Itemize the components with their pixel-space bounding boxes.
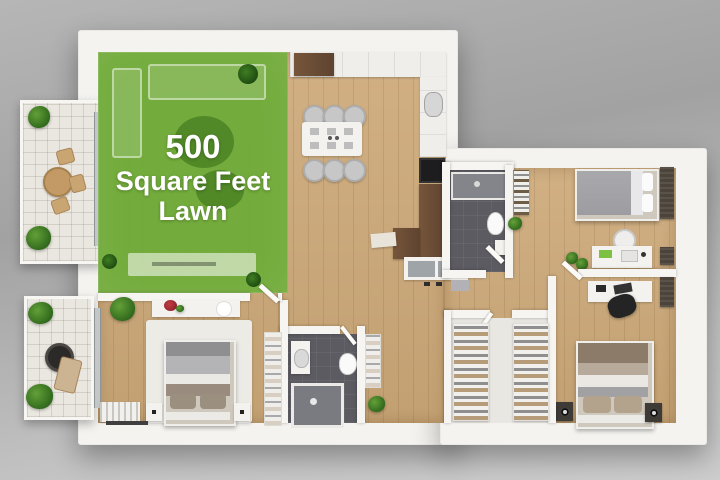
shower-head xyxy=(474,181,480,187)
wall xyxy=(442,162,514,170)
towel-shelf xyxy=(365,334,381,388)
bed-pillow xyxy=(170,394,196,409)
lawn-label-word: Lawn xyxy=(158,196,227,226)
balcony-plant-icon xyxy=(28,106,50,128)
laptop xyxy=(621,250,638,262)
wall xyxy=(444,310,451,423)
bed-duvet xyxy=(578,343,648,363)
plant-icon xyxy=(508,217,522,230)
wall xyxy=(442,162,450,278)
kitchen-counter-right xyxy=(420,77,446,157)
lawn-label: 500 Square Feet Lawn xyxy=(98,118,288,238)
bed-footboard xyxy=(578,415,648,423)
plant-icon xyxy=(368,396,385,412)
lawn-label-unit: Square Feet xyxy=(116,166,271,196)
table-centerpiece xyxy=(328,136,332,140)
desk-accessory xyxy=(596,285,606,292)
nightstand xyxy=(556,402,573,421)
balcony-plant-icon xyxy=(26,384,53,409)
wardrobe xyxy=(660,167,674,219)
plant-icon xyxy=(110,297,135,321)
plant-icon xyxy=(176,305,184,312)
kitchen-sink xyxy=(424,92,443,117)
nightstand-knob xyxy=(561,408,569,416)
bed-pillow xyxy=(614,396,642,413)
wardrobe xyxy=(660,247,674,265)
media-console-screen xyxy=(152,262,216,266)
radiator-bench xyxy=(100,402,140,422)
nightstand xyxy=(645,403,662,422)
plant-icon xyxy=(102,254,117,269)
placemat xyxy=(344,128,353,135)
cabinet xyxy=(660,277,674,307)
flower-vase xyxy=(164,300,177,311)
bed-bottom-right xyxy=(576,341,654,429)
shoes xyxy=(436,282,442,286)
bed-duvet xyxy=(578,363,648,375)
shower-top-bathroom xyxy=(451,172,508,200)
placemat xyxy=(327,142,336,149)
plant-icon xyxy=(246,272,261,287)
kitchen-island xyxy=(393,228,420,259)
bed-pillow xyxy=(200,394,226,409)
nightstand-knob xyxy=(650,409,658,417)
bed-bottom-left xyxy=(164,340,236,426)
kitchen-dark-cabinet xyxy=(294,53,334,76)
cutting-board xyxy=(370,232,396,248)
bed-footboard xyxy=(166,412,230,420)
window-strip xyxy=(106,421,148,425)
wall xyxy=(357,326,365,423)
wall xyxy=(280,326,340,334)
clothes-rack xyxy=(453,323,489,421)
wall xyxy=(548,276,556,423)
toilet xyxy=(339,353,357,375)
bed-pillow xyxy=(583,396,611,413)
storage-shelf xyxy=(514,170,529,215)
desk-lamp xyxy=(641,252,646,257)
bed-pillow xyxy=(642,173,653,191)
plant-icon xyxy=(238,64,258,84)
nightstand xyxy=(234,403,250,421)
clothes-rack xyxy=(513,323,549,421)
table-centerpiece xyxy=(335,136,339,140)
desk-accessory xyxy=(599,250,612,258)
floor-plan-image: 500 Square Feet Lawn xyxy=(0,0,720,480)
placemat xyxy=(310,128,319,135)
bed-duvet xyxy=(166,356,230,374)
sliding-door xyxy=(94,308,101,408)
vanity-sink xyxy=(294,349,309,368)
nightstand xyxy=(146,403,162,421)
bed-duvet xyxy=(577,171,633,215)
nightstand-knob xyxy=(240,410,244,414)
sideboard-door-panel xyxy=(408,261,435,277)
dining-chair xyxy=(343,159,366,182)
balcony-plant-icon xyxy=(26,226,51,250)
bed-sheet xyxy=(166,374,230,384)
toilet xyxy=(487,212,504,235)
lawn-label-value: 500 xyxy=(165,129,220,166)
bed-pillow xyxy=(642,194,653,212)
placemat xyxy=(310,142,319,149)
shoes xyxy=(424,282,430,286)
bed-duvet xyxy=(166,342,230,356)
nightstand-knob xyxy=(152,410,156,414)
bath-mat xyxy=(451,280,469,291)
shower-drain xyxy=(310,398,317,405)
wall xyxy=(578,269,676,277)
wall xyxy=(512,310,552,318)
placemat xyxy=(344,142,353,149)
decor-bowl xyxy=(216,301,232,317)
linen-wardrobe xyxy=(264,332,282,426)
shower-bottom-bathroom xyxy=(291,383,344,428)
bed-sheet xyxy=(578,375,648,387)
balcony-plant-icon xyxy=(28,302,53,324)
wall xyxy=(442,270,486,278)
bed-top-right xyxy=(575,169,659,221)
placemat xyxy=(327,128,336,135)
